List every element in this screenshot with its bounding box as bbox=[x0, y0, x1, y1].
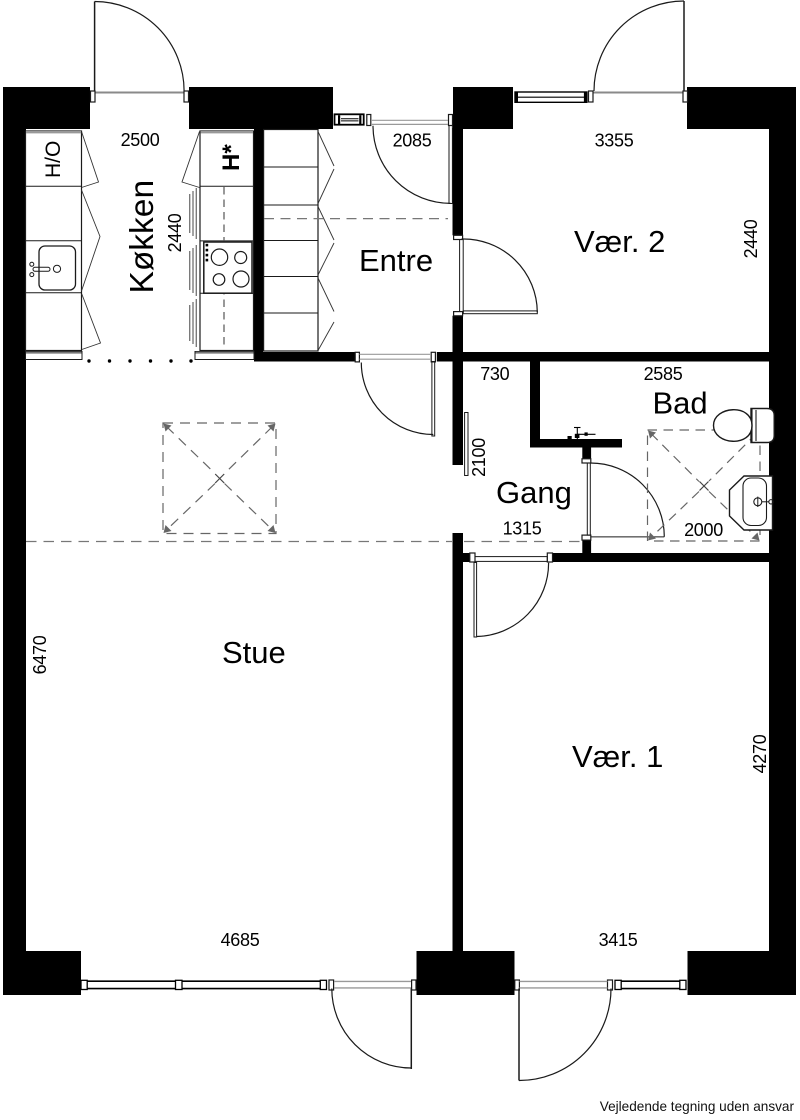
svg-text:2500: 2500 bbox=[121, 130, 160, 150]
svg-text:Bad: Bad bbox=[653, 386, 708, 421]
svg-text:2585: 2585 bbox=[644, 364, 683, 384]
svg-text:Stue: Stue bbox=[222, 635, 286, 670]
svg-text:3415: 3415 bbox=[599, 930, 638, 950]
svg-text:3355: 3355 bbox=[595, 131, 634, 151]
svg-text:2440: 2440 bbox=[165, 213, 185, 252]
svg-text:Entre: Entre bbox=[359, 243, 433, 278]
svg-text:2000: 2000 bbox=[684, 520, 723, 540]
svg-text:Køkken: Køkken bbox=[124, 180, 161, 294]
svg-text:Vejledende tegning uden ansvar: Vejledende tegning uden ansvar bbox=[600, 1099, 795, 1114]
svg-text:1315: 1315 bbox=[503, 519, 542, 539]
svg-text:Vær. 2: Vær. 2 bbox=[574, 224, 665, 259]
svg-text:H*: H* bbox=[218, 144, 245, 171]
svg-text:2440: 2440 bbox=[741, 219, 761, 258]
svg-text:H/O: H/O bbox=[42, 141, 65, 178]
svg-text:4685: 4685 bbox=[221, 930, 260, 950]
svg-text:Vær. 1: Vær. 1 bbox=[572, 739, 663, 774]
svg-text:2085: 2085 bbox=[393, 131, 432, 151]
svg-text:2100: 2100 bbox=[469, 438, 489, 477]
svg-text:6470: 6470 bbox=[30, 635, 50, 674]
svg-text:730: 730 bbox=[480, 364, 509, 384]
svg-text:4270: 4270 bbox=[750, 734, 770, 773]
svg-text:Gang: Gang bbox=[496, 475, 572, 510]
